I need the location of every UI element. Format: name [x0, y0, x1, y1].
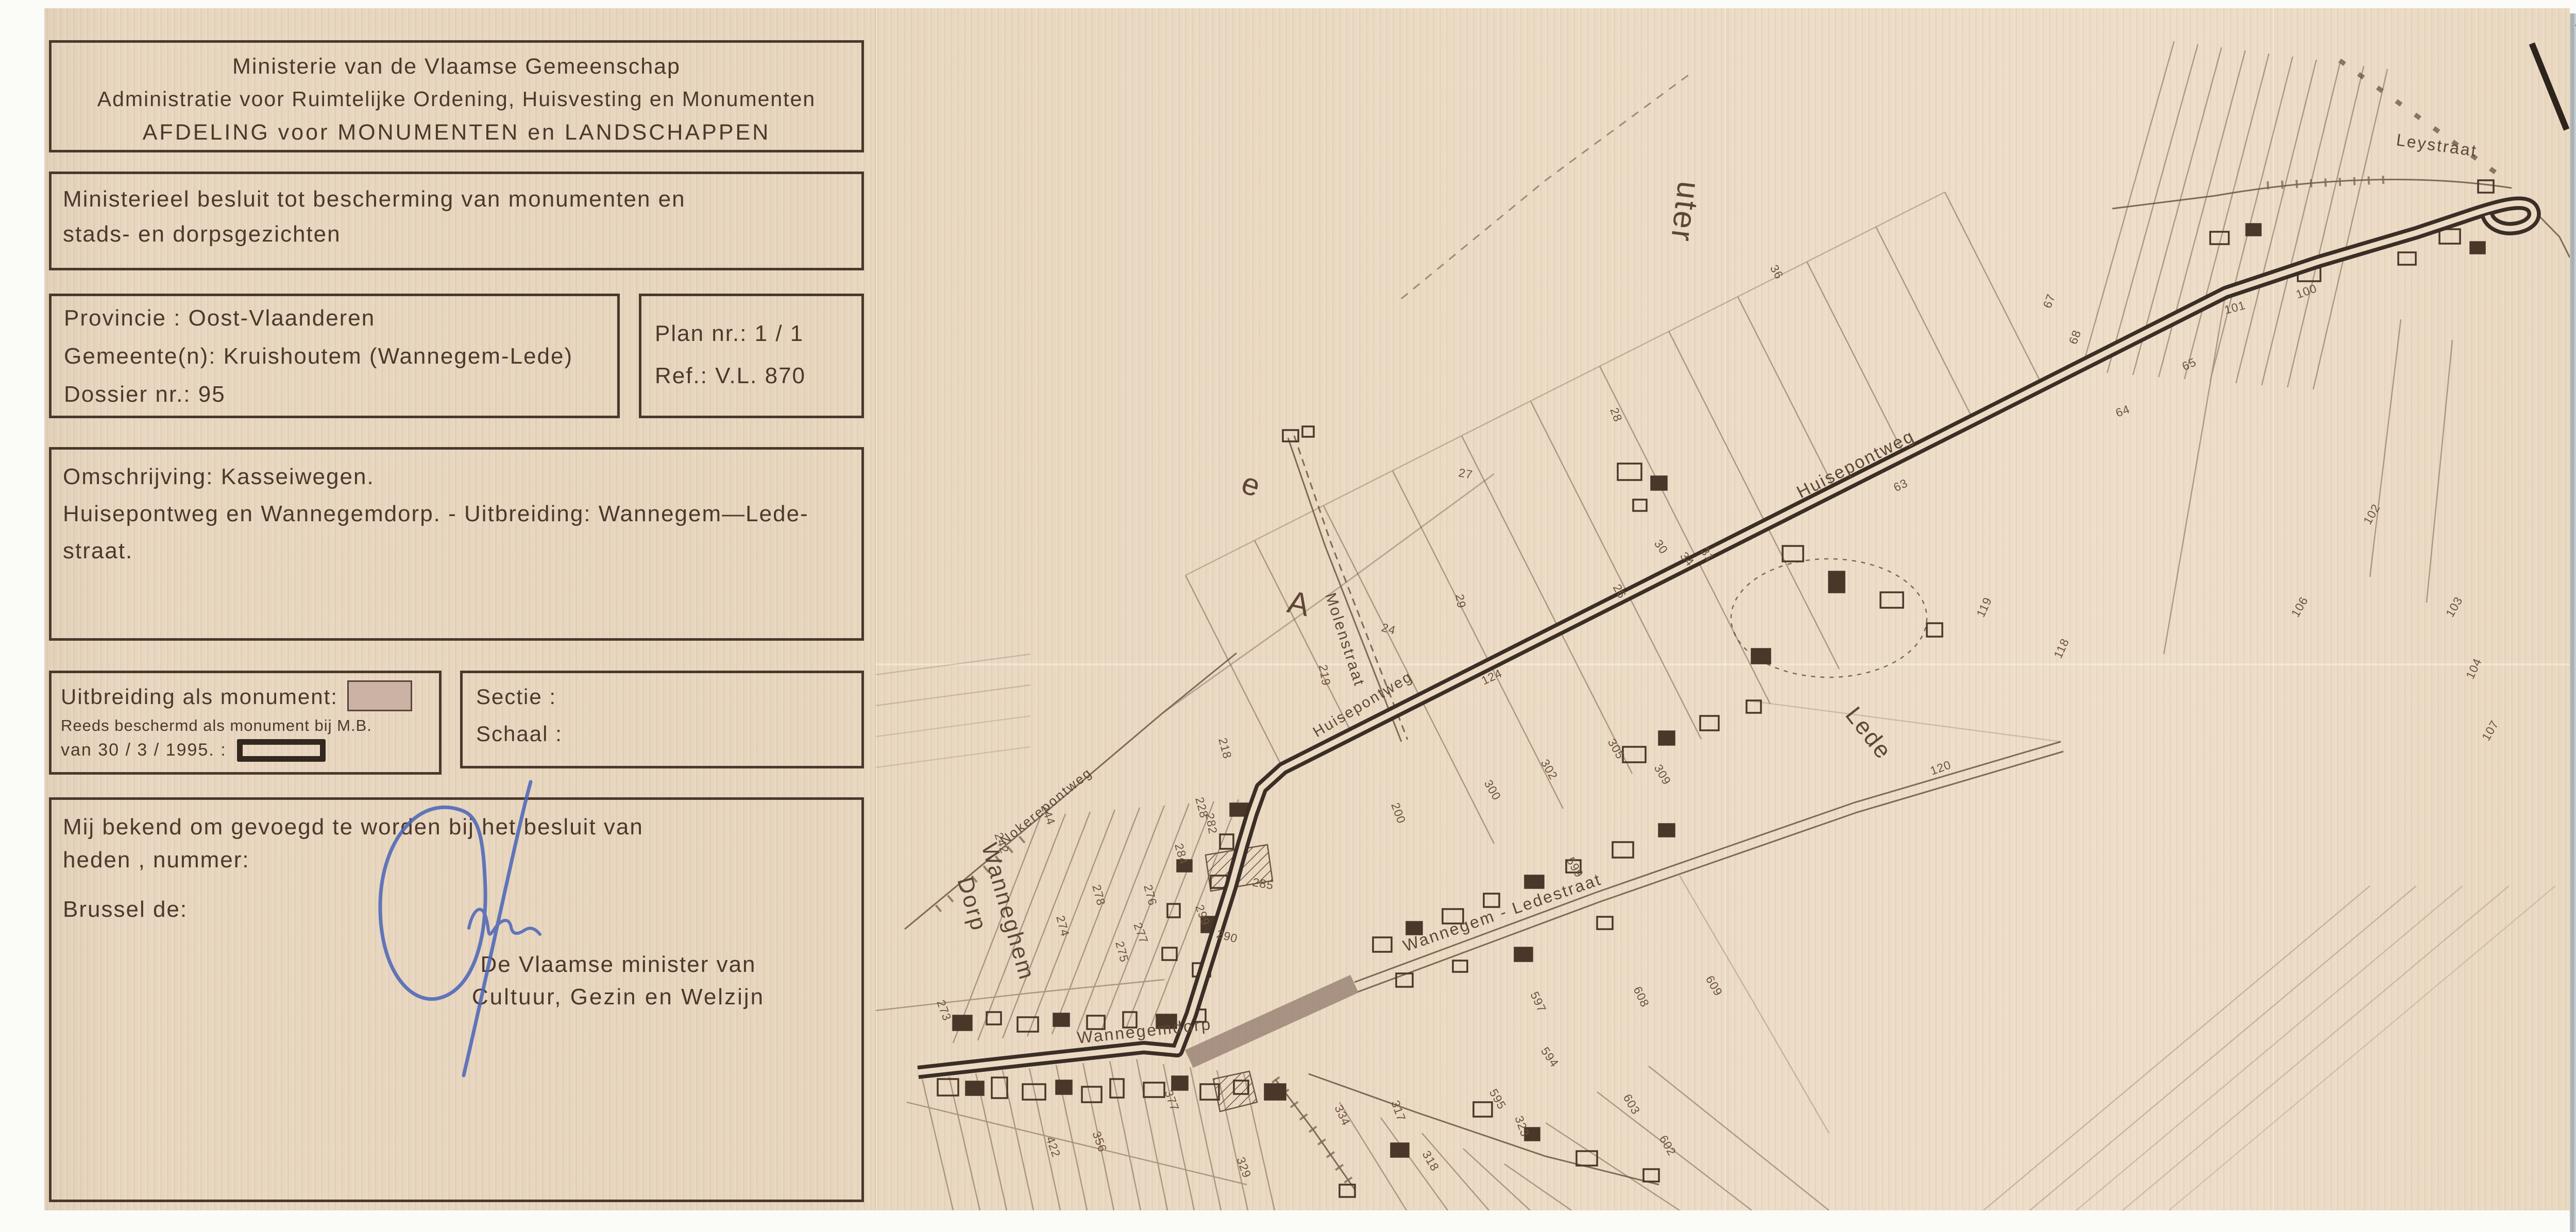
parcel-number: 200: [1388, 801, 1409, 826]
minister-signature: [309, 773, 629, 1113]
parcel-number: 594: [1538, 1045, 1562, 1070]
parcel-number: 282: [1203, 812, 1220, 835]
street-label: A: [1284, 584, 1314, 624]
parcel-number: 277: [1131, 921, 1151, 946]
plan-number-box: Plan nr.: 1 / 1 Ref.: V.L. 870: [639, 294, 864, 418]
parcel-number: 68: [2066, 328, 2083, 346]
extension-monument-swatch: [347, 680, 412, 711]
description-box: Omschrijving: Kasseiwegen. Huisepontweg …: [49, 447, 864, 641]
dossier-line: Dossier nr.: 95: [64, 382, 226, 407]
parcel-number: 218: [1216, 737, 1234, 761]
church-footpath: [1275, 1079, 1355, 1190]
parcel-number: 309: [1652, 762, 1674, 788]
cadastral-map: utereAMolenstraatHuisepontwegHuisepontwe…: [876, 10, 2570, 1210]
parcel-number: 323: [1512, 1114, 1532, 1139]
parcel-number: 118: [2051, 636, 2072, 660]
street-label: Dorp: [952, 874, 992, 934]
scale-line: Schaal :: [476, 722, 563, 746]
parcel-number: 602: [1657, 1133, 1679, 1158]
province-box: Provincie : Oost-Vlaanderen Gemeente(n):…: [49, 294, 620, 418]
parcel-number: 67: [2040, 292, 2058, 310]
parcel-number: 104: [2463, 656, 2484, 681]
parcel-number: 595: [1487, 1087, 1509, 1112]
legend-extension-row: Uitbreiding als monument:: [61, 680, 412, 711]
street-label: Leystraat: [2395, 130, 2479, 160]
department-title: AFDELING voor MONUMENTEN en LANDSCHAPPEN: [52, 120, 861, 145]
legend-reeds-row: van 30 / 3 / 1995. :: [61, 739, 326, 762]
parcel-number: 64: [2114, 402, 2132, 420]
map-labels: utereAMolenstraatHuisepontwegHuisepontwe…: [934, 130, 2501, 1179]
parcel-number: 275: [1113, 940, 1131, 964]
street-label: Lede: [1840, 701, 1897, 764]
parcel-number: 27: [1458, 466, 1474, 481]
parcel-number: 63: [1891, 476, 1910, 494]
legend-extension-label: Uitbreiding als monument:: [61, 685, 338, 709]
parcel-number: 119: [1974, 595, 1994, 619]
extension-monument-road: [1189, 984, 1354, 1059]
parcel-number: 106: [2289, 594, 2311, 620]
parcel-number: 65: [2180, 355, 2198, 373]
parcel-number: 274: [1054, 914, 1072, 938]
parcel-number: 28: [1607, 406, 1625, 424]
administration-title: Administratie voor Ruimtelijke Ordening,…: [52, 87, 861, 111]
brussels-date-line: Brussel de:: [63, 897, 188, 922]
protected-road: [918, 203, 2534, 1072]
parcel-number: 317: [1388, 1099, 1409, 1123]
section-line: Sectie :: [476, 685, 556, 709]
decree-type-box: Ministerieel besluit tot bescherming van…: [49, 172, 864, 270]
parcel-number: 219: [1316, 663, 1333, 687]
parcel-number: 356: [1090, 1130, 1110, 1154]
parcel-number: 302: [1538, 757, 1561, 782]
parcel-number: 100: [2294, 281, 2319, 301]
parcel-number: 24: [1380, 621, 1397, 637]
parcel-number: 102: [2361, 502, 2383, 527]
parcel-number: 284: [1172, 842, 1191, 866]
parcel-number: 36: [1768, 263, 1786, 282]
scanned-decree-plan: Ministerie van de Vlaamse Gemeenschap Ad…: [0, 0, 2576, 1232]
parcel-number: 103: [2443, 594, 2465, 620]
legend-reeds-date: van 30 / 3 / 1995. :: [61, 740, 227, 760]
scan-backdrop-strip: [2570, 13, 2576, 1232]
parcel-number: 329: [1234, 1155, 1254, 1180]
description-line1: Omschrijving: Kasseiwegen.: [63, 464, 375, 490]
street-label: uter: [1664, 179, 1707, 244]
parcel-number: 101: [2223, 298, 2247, 317]
parcel-number: 608: [1631, 984, 1652, 1009]
plan-ref-line: Ref.: V.L. 870: [655, 363, 806, 389]
legend-reeds-line1: Reeds beschermd als monument bij M.B.: [61, 716, 372, 735]
protected-monument-swatch: [237, 739, 326, 762]
parcel-number: 299: [1193, 903, 1213, 928]
description-line2: Huisepontweg en Wannegemdorp. - Uitbreid…: [63, 501, 809, 527]
street-label: Wannegem - Ledestraat: [1401, 870, 1604, 955]
decree-type-line2: stads- en dorpsgezichten: [63, 221, 341, 247]
decree-type-line1: Ministerieel besluit tot bescherming van…: [63, 186, 686, 212]
header-box: Ministerie van de Vlaamse Gemeenschap Ad…: [49, 40, 864, 152]
street-label: e: [1238, 466, 1266, 504]
cadastral-map-svg: utereAMolenstraatHuisepontwegHuisepontwe…: [876, 10, 2570, 1210]
parcel-number: 597: [1528, 989, 1549, 1014]
parcel-number: 609: [1703, 973, 1725, 999]
legend-box: Uitbreiding als monument: Reeds bescherm…: [49, 671, 442, 775]
parcel-number: 29: [1453, 593, 1468, 609]
parcel-number: 377: [1162, 1088, 1182, 1113]
parcel-number: 30: [1652, 537, 1671, 557]
parcel-number: 422: [1043, 1135, 1063, 1159]
section-scale-box: Sectie : Schaal :: [460, 671, 864, 768]
municipality-line: Gemeente(n): Kruishoutem (Wannegem-Lede): [64, 344, 573, 369]
description-line3: straat.: [63, 538, 133, 564]
province-line: Provincie : Oost-Vlaanderen: [64, 305, 375, 331]
ministry-title: Ministerie van de Vlaamse Gemeenschap: [52, 54, 861, 79]
parcel-number: 278: [1090, 883, 1108, 908]
parcel-number: 300: [1482, 778, 1504, 803]
parcel-number: 334: [1332, 1103, 1353, 1127]
parcel-number: 107: [2479, 718, 2501, 743]
plan-number-line: Plan nr.: 1 / 1: [655, 321, 804, 347]
known-line2: heden , nummer:: [63, 847, 250, 873]
